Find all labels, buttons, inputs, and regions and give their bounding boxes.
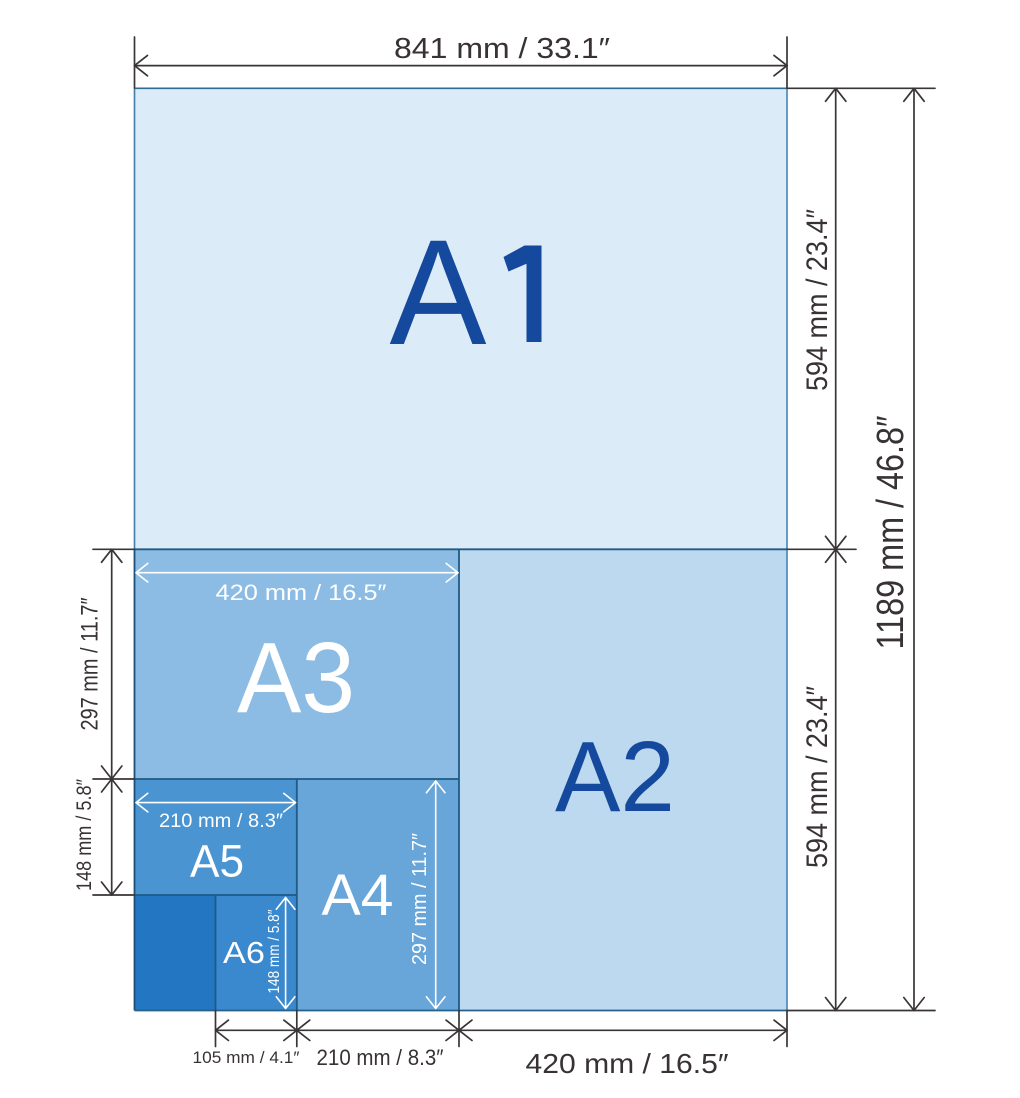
svg-text:A2: A2 xyxy=(555,721,675,833)
svg-text:A6: A6 xyxy=(223,935,265,970)
svg-text:297 mm / 11.7″: 297 mm / 11.7″ xyxy=(77,597,104,730)
svg-text:148 mm / 5.8″: 148 mm / 5.8″ xyxy=(266,909,283,993)
svg-text:210 mm / 8.3″: 210 mm / 8.3″ xyxy=(159,811,283,832)
svg-text:420 mm / 16.5″: 420 mm / 16.5″ xyxy=(216,580,387,605)
svg-text:A5: A5 xyxy=(190,836,244,887)
svg-text:1189 mm / 46.8″: 1189 mm / 46.8″ xyxy=(870,416,912,650)
svg-text:A: A xyxy=(390,208,487,376)
svg-text:105 mm / 4.1″: 105 mm / 4.1″ xyxy=(193,1048,300,1067)
svg-text:420 mm / 16.5″: 420 mm / 16.5″ xyxy=(526,1048,729,1079)
svg-text:594 mm / 23.4″: 594 mm / 23.4″ xyxy=(801,686,834,868)
svg-text:297 mm / 11.7″: 297 mm / 11.7″ xyxy=(409,833,431,965)
svg-text:A3: A3 xyxy=(237,622,355,734)
svg-text:841 mm / 33.1″: 841 mm / 33.1″ xyxy=(394,33,610,65)
svg-text:210 mm / 8.3″: 210 mm / 8.3″ xyxy=(317,1045,444,1070)
svg-text:594 mm / 23.4″: 594 mm / 23.4″ xyxy=(801,209,834,391)
svg-text:A4: A4 xyxy=(322,863,394,928)
svg-text:148 mm / 5.8″: 148 mm / 5.8″ xyxy=(73,779,96,891)
